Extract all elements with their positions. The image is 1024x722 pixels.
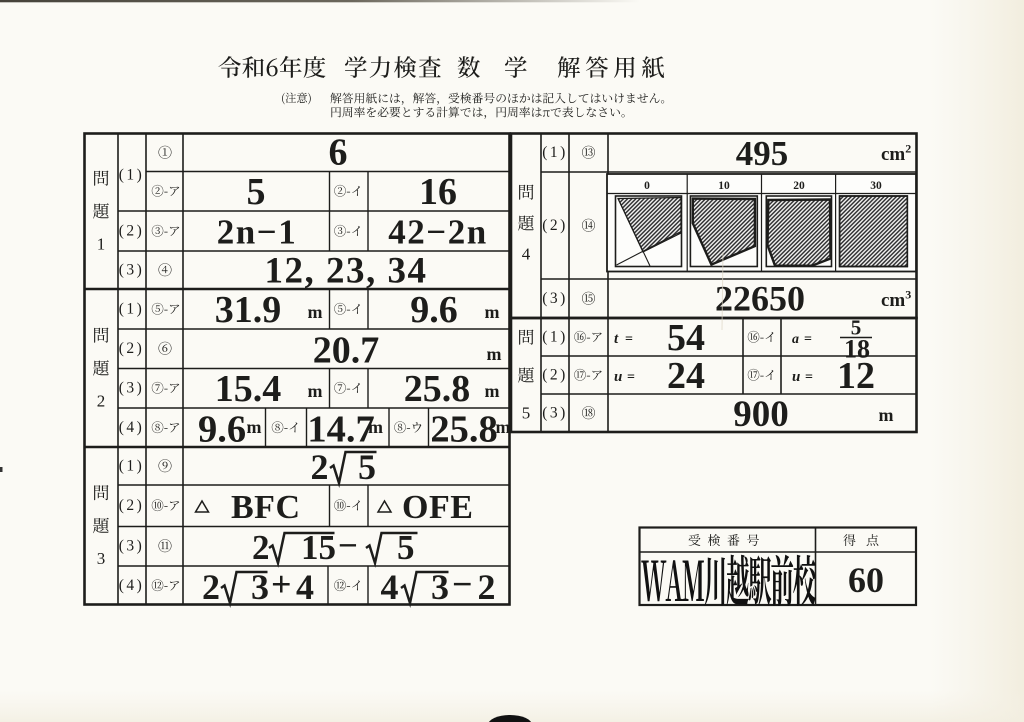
svg-text:31.9: 31.9 [215,289,282,331]
svg-text:(2): (2) [119,340,145,357]
svg-text:(4): (4) [119,577,145,594]
svg-text:(3): (3) [119,380,145,397]
svg-text:m: m [487,344,502,364]
svg-text:m: m [247,417,262,437]
svg-text:(3): (3) [119,262,145,279]
svg-text:495: 495 [736,134,789,173]
svg-text:OFE: OFE [402,489,473,526]
svg-text:25.8: 25.8 [404,368,471,410]
svg-text:16: 16 [419,171,457,213]
svg-text:20: 20 [793,180,805,192]
svg-text:3: 3 [251,567,269,607]
svg-text:(1): (1) [542,144,568,161]
svg-text:54: 54 [667,317,705,359]
svg-text:20.7: 20.7 [313,330,380,372]
svg-text:(2): (2) [542,217,568,234]
svg-text:=: = [805,370,813,385]
svg-text:u: u [614,369,622,385]
svg-text:10: 10 [718,180,730,192]
svg-text:(2): (2) [119,223,145,240]
svg-text:5: 5 [358,447,376,487]
svg-text:(1): (1) [119,301,145,318]
svg-text:m: m [308,381,323,401]
svg-text:(3): (3) [542,290,568,307]
svg-text:(3): (3) [119,538,145,555]
svg-text:BFC: BFC [231,489,301,526]
svg-text:(1): (1) [119,458,145,475]
svg-text:(2): (2) [542,367,568,384]
svg-text:+: + [271,564,292,604]
svg-text:22650: 22650 [715,279,805,319]
svg-text:u: u [792,369,800,385]
svg-text:m: m [485,381,500,401]
svg-text:2: 2 [97,392,106,411]
svg-text:12: 12 [837,355,875,397]
svg-text:900: 900 [733,394,789,435]
svg-text:4: 4 [381,567,399,607]
svg-text:6: 6 [329,132,348,174]
svg-text:(2): (2) [119,497,145,514]
svg-text:1: 1 [97,235,106,254]
svg-text:12, 23, 34: 12, 23, 34 [265,251,428,292]
svg-text:=: = [804,332,812,347]
svg-text:2n−1: 2n−1 [217,213,297,252]
svg-text:a: a [792,332,799,347]
svg-text:2: 2 [202,567,220,607]
svg-text:4: 4 [296,567,314,607]
svg-text:3: 3 [97,549,106,568]
svg-text:25.8: 25.8 [430,409,497,451]
svg-text:(1): (1) [542,329,568,346]
svg-text:−: − [452,564,473,604]
svg-text:5: 5 [397,528,415,567]
svg-text:=: = [627,370,635,385]
svg-text:3: 3 [431,567,449,607]
svg-text:m: m [368,417,383,437]
svg-text:14.7: 14.7 [307,409,374,451]
svg-text:4: 4 [522,245,531,264]
svg-text:9.6: 9.6 [198,409,246,451]
svg-text:0: 0 [644,180,650,192]
svg-text:9.6: 9.6 [410,289,458,331]
svg-text:5: 5 [522,404,531,423]
svg-text:2: 2 [478,567,496,607]
svg-text:15.4: 15.4 [215,368,282,410]
svg-text:5: 5 [247,171,266,213]
svg-text:2: 2 [252,528,270,567]
svg-text:m: m [879,405,894,425]
svg-text:=: = [625,332,633,347]
svg-text:(4): (4) [119,419,145,436]
svg-text:m: m [308,302,323,322]
svg-text:60: 60 [848,560,884,600]
svg-text:−: − [338,526,358,565]
svg-text:24: 24 [667,355,705,397]
svg-text:2: 2 [311,447,329,487]
svg-text:m: m [485,302,500,322]
svg-text:(3): (3) [542,405,568,422]
svg-text:15: 15 [301,528,336,567]
svg-text:42−2n: 42−2n [388,213,487,252]
svg-text:30: 30 [870,180,882,192]
svg-text:(1): (1) [119,167,145,184]
svg-text:m: m [496,417,511,437]
